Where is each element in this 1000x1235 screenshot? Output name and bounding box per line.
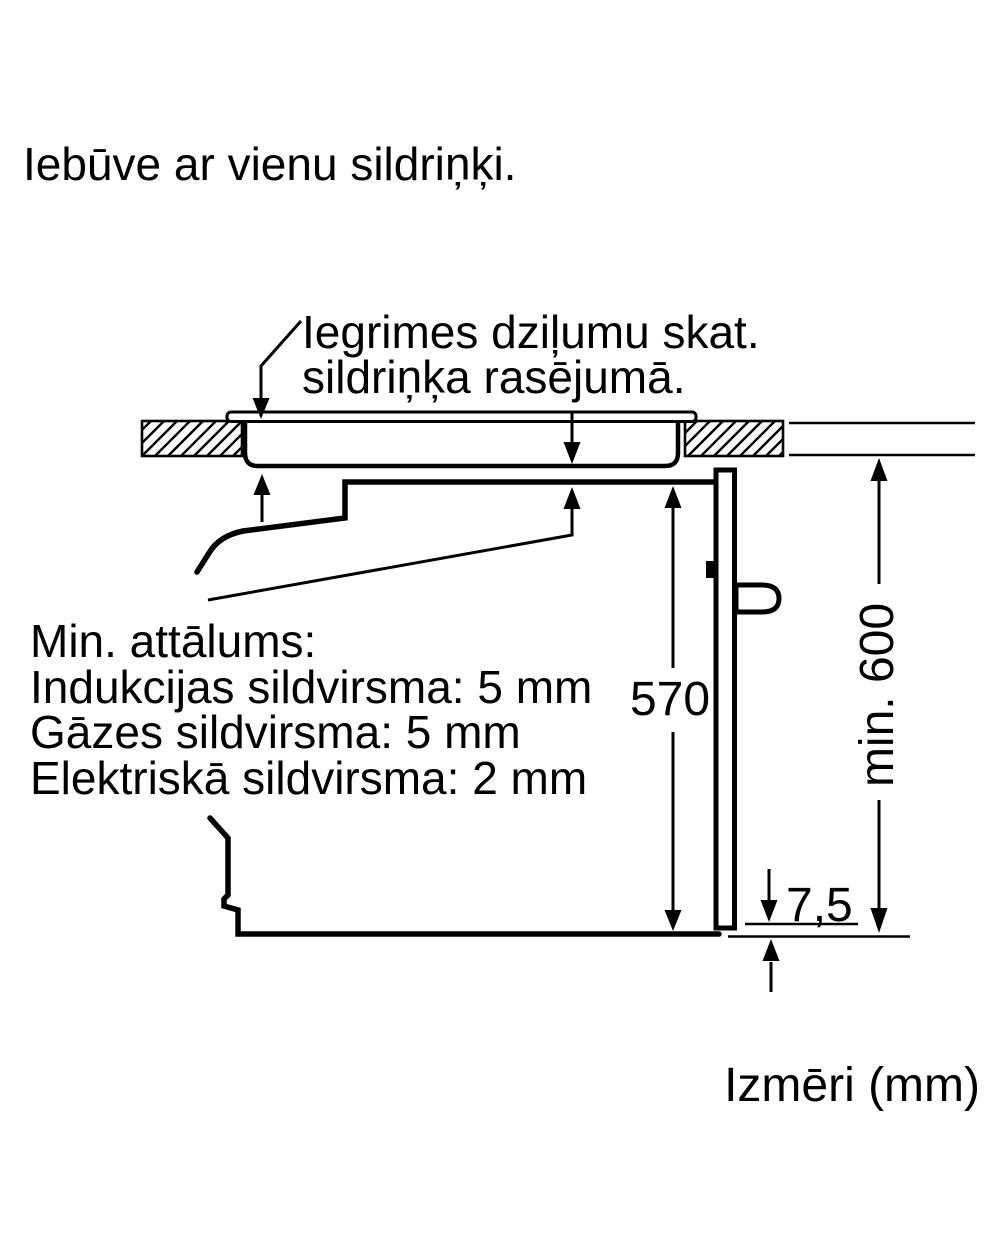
recess-note-leader-line-left	[261, 321, 301, 399]
dim-600-arrowhead-top	[871, 458, 888, 481]
hob-glass-top	[227, 412, 696, 422]
dim-600-arrowhead-bottom	[871, 908, 888, 933]
min-distance-arrowhead-rear	[564, 487, 581, 509]
page-title: Iebūve ar vienu sildriņķi.	[23, 141, 516, 187]
installation-diagram-page: Iebūve ar vienu sildriņķi. Iegrimes dziļ…	[0, 0, 1000, 1235]
countertop-right-section	[685, 421, 783, 456]
oven-door-panel	[716, 470, 735, 928]
hob-body-outline	[245, 419, 678, 466]
recess-depth-note: Iegrimes dziļumu skat. sildriņķa rasējum…	[302, 310, 760, 400]
recess-depth-note-line2: sildriņķa rasējumā.	[302, 355, 760, 400]
dim-75-arrowhead-top	[761, 900, 778, 922]
min-distance-item-gas: Gāzes sildvirsma: 5 mm	[30, 710, 592, 756]
min-distance-arrowhead-front	[254, 474, 271, 495]
oven-control-knob	[736, 585, 779, 612]
oven-door-hinge-tab	[706, 561, 718, 578]
min-distance-item-electric: Elektriskā sildvirsma: 2 mm	[30, 756, 592, 802]
oven-bottom-edge	[210, 818, 719, 934]
dim-75-value: 7,5	[786, 882, 853, 930]
units-note: Izmēri (mm)	[600, 1062, 980, 1110]
dim-75-arrowhead-bottom	[763, 939, 780, 961]
dim-570-arrowhead-bottom	[665, 910, 682, 931]
recess-depth-note-line1: Iegrimes dziļumu skat.	[302, 310, 760, 355]
min-distance-block: Min. attālums: Indukcijas sildvirsma: 5 …	[30, 619, 592, 801]
min-distance-item-induction: Indukcijas sildvirsma: 5 mm	[30, 665, 592, 711]
oven-top-edge	[197, 482, 716, 572]
dim-600-value: min. 600	[854, 603, 902, 787]
min-distance-heading: Min. attālums:	[30, 619, 592, 665]
dim-570-arrowhead-top	[665, 486, 682, 508]
dim-570-value: 570	[630, 676, 710, 724]
countertop-left-section	[142, 421, 242, 456]
